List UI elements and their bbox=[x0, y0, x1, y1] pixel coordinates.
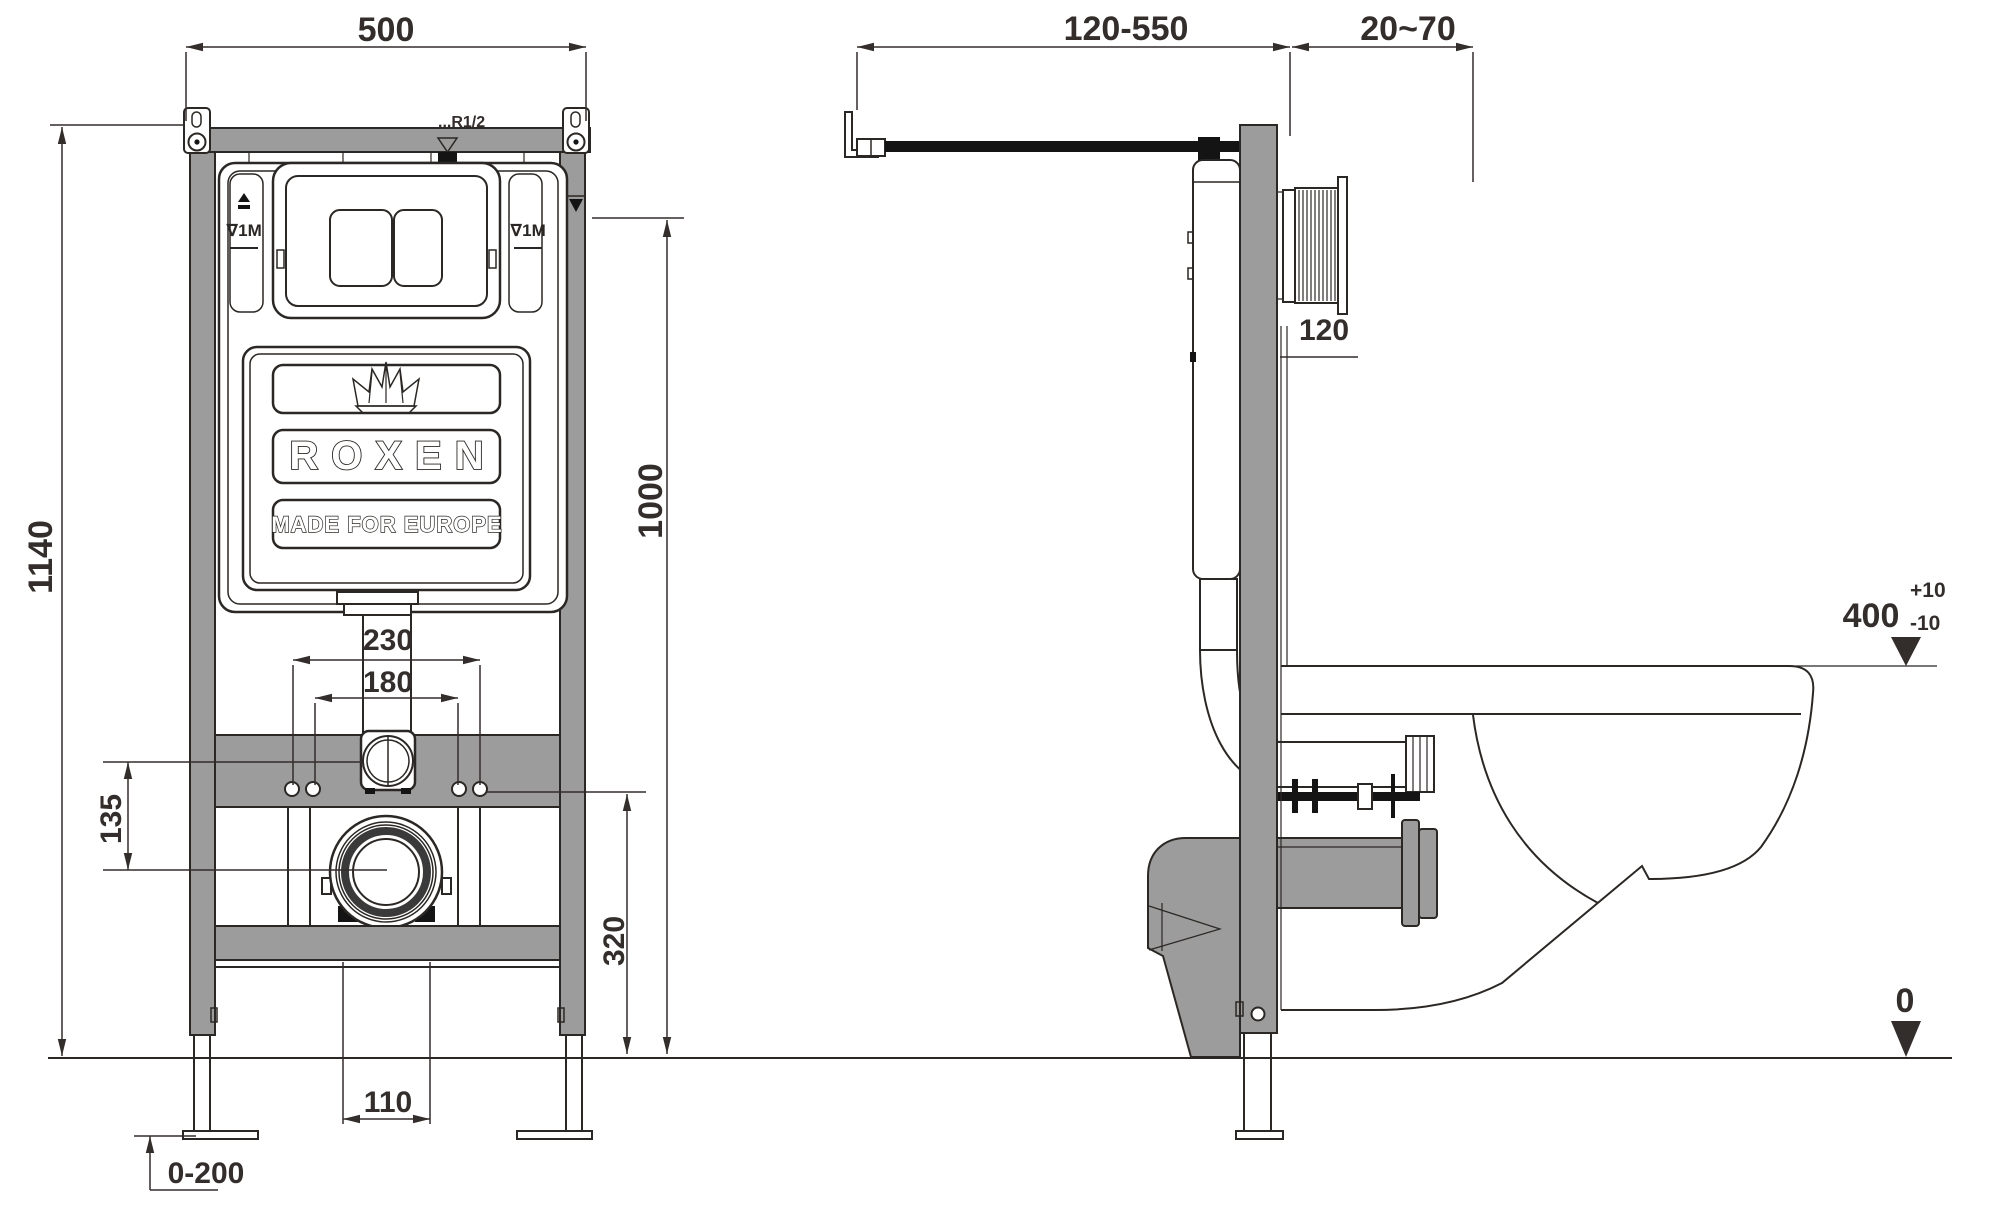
level-marker-0: 0 bbox=[1891, 982, 1921, 1057]
dim-bowl-tol-minus-label: -10 bbox=[1910, 612, 1940, 635]
drain-elbow bbox=[1148, 838, 1240, 1057]
drain-outlet-front bbox=[322, 816, 451, 928]
dim-outlet-width-label: 110 bbox=[364, 1086, 412, 1119]
mounting-hole bbox=[285, 782, 299, 796]
side-view bbox=[845, 112, 1937, 1139]
installation-drawing-page: ∇1M ∇1M ROXEN MADE FOR EUROPE bbox=[0, 0, 2000, 1210]
level-marker-400: 400 +10 -10 bbox=[1843, 579, 1946, 666]
dim-studs-outer-label: 230 bbox=[363, 624, 413, 657]
mounting-hole bbox=[306, 782, 320, 796]
frame-rail-side bbox=[1240, 125, 1277, 1033]
dimension-outlet-110: 110 bbox=[343, 962, 430, 1124]
dim-frame-depth-label: 120 bbox=[1299, 314, 1349, 347]
technical-drawing: ∇1M ∇1M ROXEN MADE FOR EUROPE bbox=[0, 0, 2000, 1210]
flush-fitting bbox=[361, 731, 415, 794]
dim-flush-height-label: 1000 bbox=[632, 463, 670, 539]
mounting-hole bbox=[452, 782, 466, 796]
strut-left bbox=[288, 807, 310, 926]
dimension-supply-120-550: 120-550 bbox=[857, 10, 1290, 136]
dim-width-label: 500 bbox=[358, 11, 415, 49]
wall-bracket bbox=[845, 112, 885, 157]
foot-plate-left bbox=[183, 1131, 258, 1139]
corner-bracket-right bbox=[563, 108, 589, 153]
supply-thread-label: ...R1/2 bbox=[438, 114, 485, 131]
frame-rail-left bbox=[190, 130, 215, 1035]
bottom-crossbar bbox=[215, 926, 560, 960]
dimension-height-1140: 1140 bbox=[22, 125, 184, 1056]
flush-plate bbox=[273, 163, 500, 318]
dim-floor-level-label: 0 bbox=[1896, 982, 1915, 1020]
dim-drain-height-label: 320 bbox=[598, 916, 631, 966]
supply-pipe bbox=[885, 141, 1240, 152]
strut-right bbox=[458, 807, 480, 926]
hanger-ticks bbox=[249, 152, 524, 163]
brand-subtitle: MADE FOR EUROPE bbox=[271, 512, 502, 537]
outlet-connector bbox=[1277, 820, 1437, 926]
cistern-neck bbox=[1200, 579, 1237, 650]
dim-studs-inner-label: 180 bbox=[363, 666, 413, 699]
flush-pipe-front bbox=[337, 592, 418, 733]
level-mark-right: ∇1M bbox=[510, 221, 545, 240]
foot-plate-right bbox=[517, 1131, 592, 1139]
dimension-width-500: 500 bbox=[186, 11, 586, 121]
dimension-depth-120: 120 bbox=[1280, 314, 1358, 357]
flush-button-small bbox=[394, 210, 442, 286]
access-box bbox=[1277, 177, 1347, 314]
dim-supply-reach-label: 120-550 bbox=[1064, 10, 1189, 48]
frame-hole bbox=[1252, 1008, 1265, 1021]
dim-bowl-height-label: 400 bbox=[1843, 597, 1900, 635]
corner-bracket-left bbox=[184, 108, 210, 153]
flush-pipe-side bbox=[1277, 736, 1434, 792]
foot-plate-side bbox=[1236, 1131, 1283, 1139]
dim-wall-finish-label: 20~70 bbox=[1360, 10, 1456, 48]
frame-top-bar bbox=[186, 128, 590, 152]
brand-name: ROXEN bbox=[289, 434, 496, 478]
dimension-legs-0-200: 0-200 bbox=[134, 1136, 244, 1190]
dim-leg-range-label: 0-200 bbox=[168, 1157, 245, 1190]
dim-axis-offset-label: 135 bbox=[95, 794, 128, 844]
level-mark-left: ∇1M bbox=[226, 221, 261, 240]
frame-leg-left bbox=[194, 1035, 210, 1132]
frame-leg-side bbox=[1244, 1033, 1271, 1132]
flush-button-large bbox=[330, 210, 392, 286]
dim-total-height-label: 1140 bbox=[22, 520, 60, 594]
dim-bowl-tol-plus-label: +10 bbox=[1910, 579, 1946, 602]
dimension-wall-20-70: 20~70 bbox=[1292, 10, 1473, 182]
frame-leg-right bbox=[566, 1035, 582, 1132]
brand-panel: ROXEN MADE FOR EUROPE bbox=[243, 347, 530, 590]
